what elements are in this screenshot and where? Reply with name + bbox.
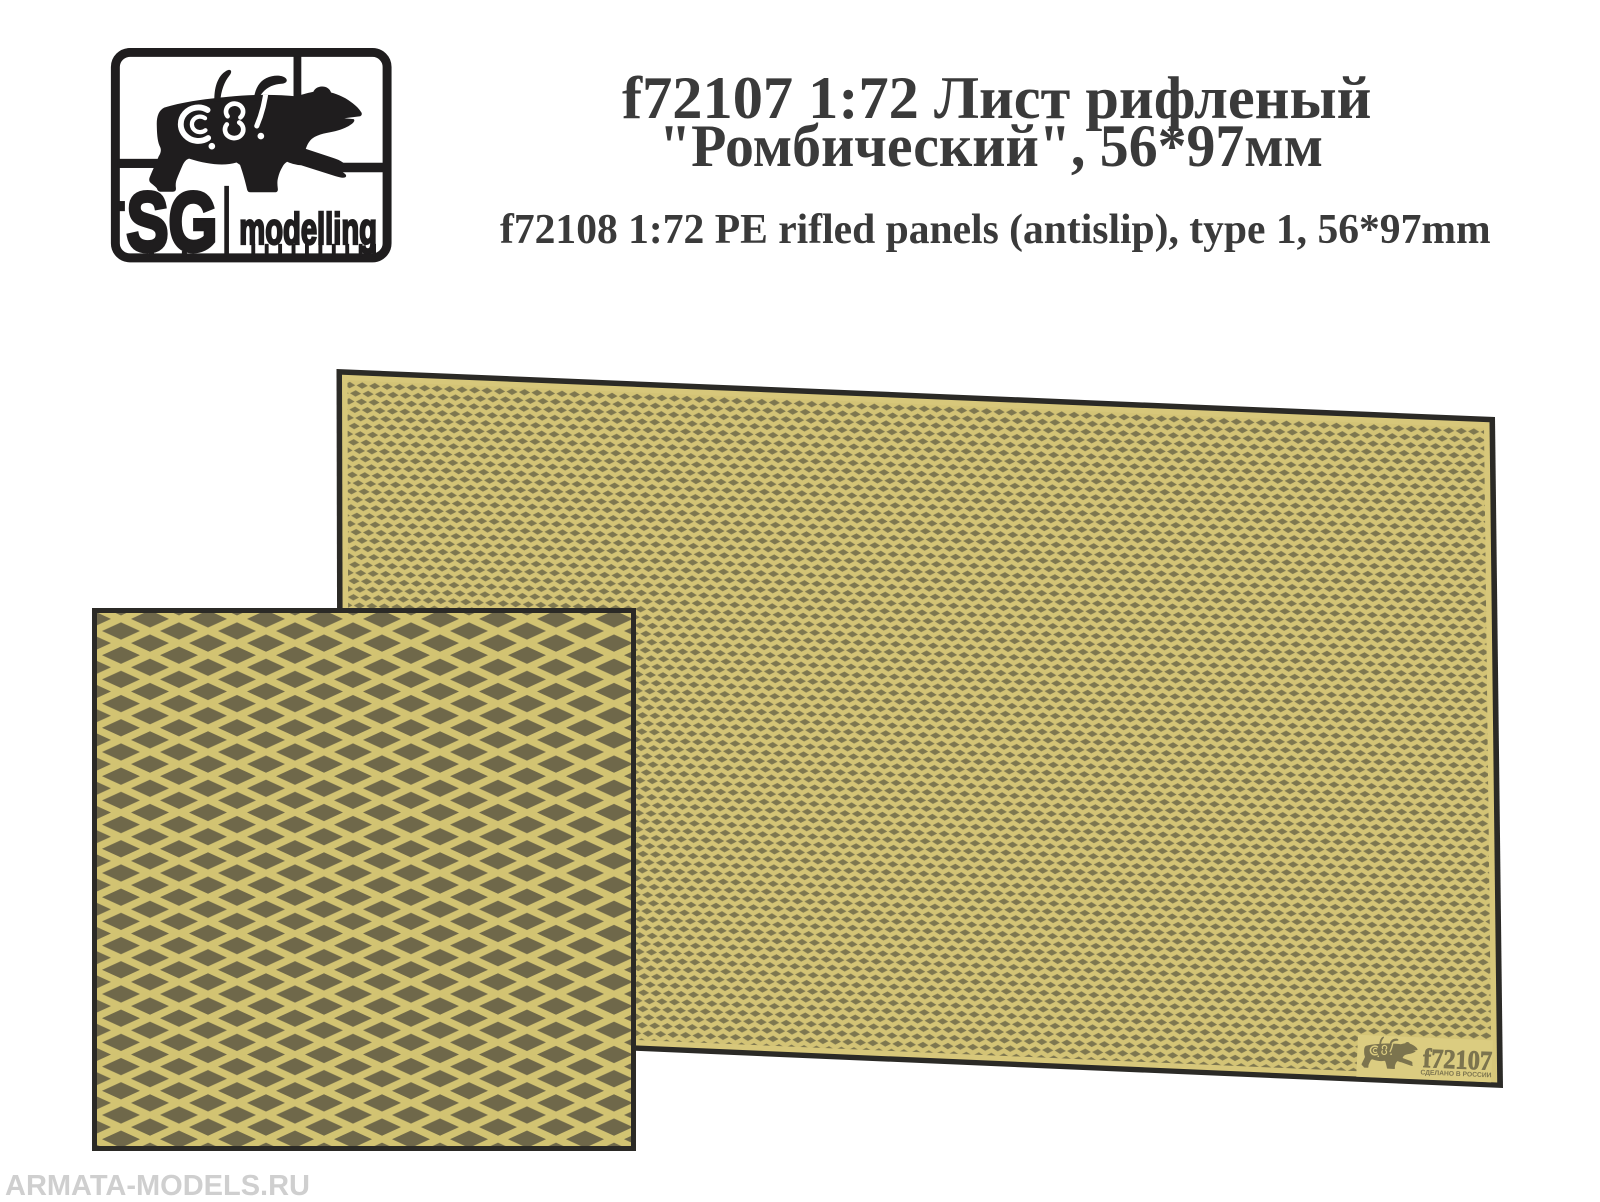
svg-text:SG: SG xyxy=(126,175,217,268)
